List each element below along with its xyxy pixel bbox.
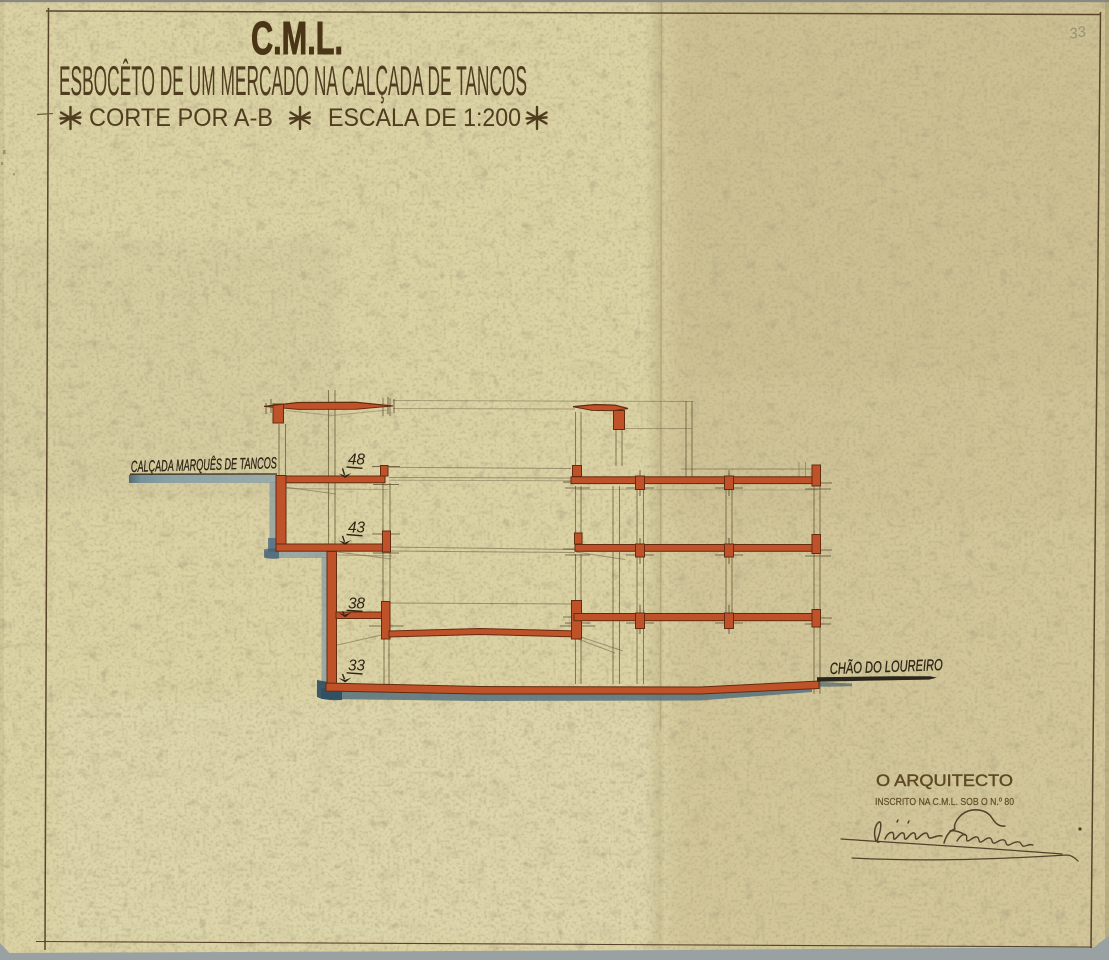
svg-text:ESBOCÊTO DE UM MERCADO NA CALÇ: ESBOCÊTO DE UM MERCADO NA CALÇADA DE TAN… [59, 57, 527, 104]
svg-text:43: 43 [348, 520, 365, 537]
svg-text:INSCRITO NA C.M.L. SOB O N.º 8: INSCRITO NA C.M.L. SOB O N.º 80 [875, 796, 1014, 808]
svg-text:ESCALA DE 1:200: ESCALA DE 1:200 [328, 104, 521, 132]
svg-text:CORTE POR A-B: CORTE POR A-B [89, 104, 273, 132]
svg-text:33: 33 [348, 658, 365, 675]
svg-text:48: 48 [348, 452, 365, 469]
svg-text:O ARQUITECTO: O ARQUITECTO [876, 772, 1013, 790]
